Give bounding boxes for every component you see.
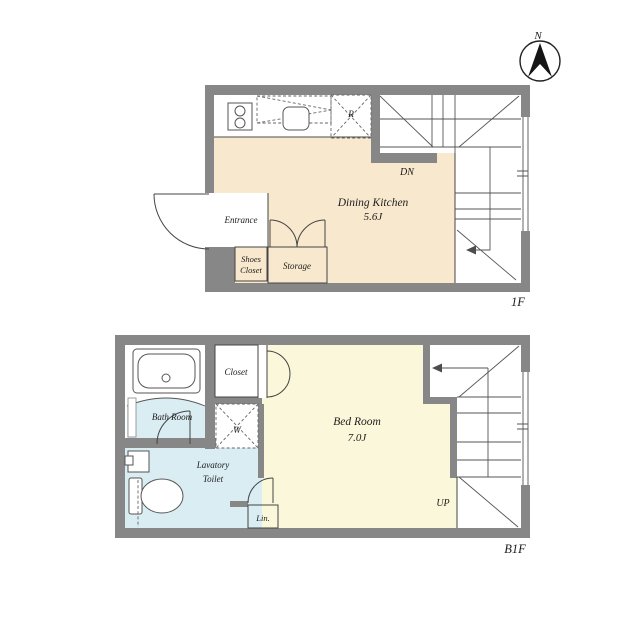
compass-north-label: N <box>533 30 542 42</box>
compass-needle-icon <box>528 43 552 77</box>
lavatory-label-line1: Lavatory <box>196 460 230 470</box>
sink-icon <box>283 107 309 130</box>
washer-label: W <box>233 426 242 436</box>
closet-label: Closet <box>224 367 248 377</box>
wash-basin-icon <box>125 451 149 472</box>
stairs-down-label: DN <box>399 167 415 178</box>
floor-plan-canvas: N R <box>0 0 640 640</box>
shoes-closet-label-line1: Shoes <box>241 254 262 264</box>
entrance-label: Entrance <box>224 215 258 225</box>
linen-label: Lin. <box>255 513 269 523</box>
dining-kitchen-label: Dining Kitchen <box>337 197 409 209</box>
compass: N <box>520 30 560 81</box>
floor-plan-b1f: Bath Room Closet W <box>115 335 530 556</box>
floor-label-1f: 1F <box>511 295 525 309</box>
bed-room-label: Bed Room <box>333 416 381 428</box>
shoes-closet-label-line2: Closet <box>240 265 262 275</box>
bath-room-label: Bath Room <box>152 412 193 422</box>
refrigerator-label: R <box>347 110 354 120</box>
entrance-door-icon <box>154 194 209 249</box>
stairs-up-label: UP <box>436 498 449 509</box>
bathtub-icon <box>133 349 200 393</box>
entrance-area: Entrance <box>154 193 268 249</box>
lavatory-label-line2: Toilet <box>203 474 224 484</box>
bath-counter <box>128 398 136 437</box>
floor-label-b1f: B1F <box>504 542 526 556</box>
storage-label: Storage <box>283 261 311 271</box>
floor-plan-1f: R DN Entrance Shoes C <box>154 85 530 309</box>
dining-kitchen-size: 5.6J <box>364 211 384 223</box>
bed-room-size: 7.0J <box>348 432 368 444</box>
toilet-icon <box>129 478 183 514</box>
